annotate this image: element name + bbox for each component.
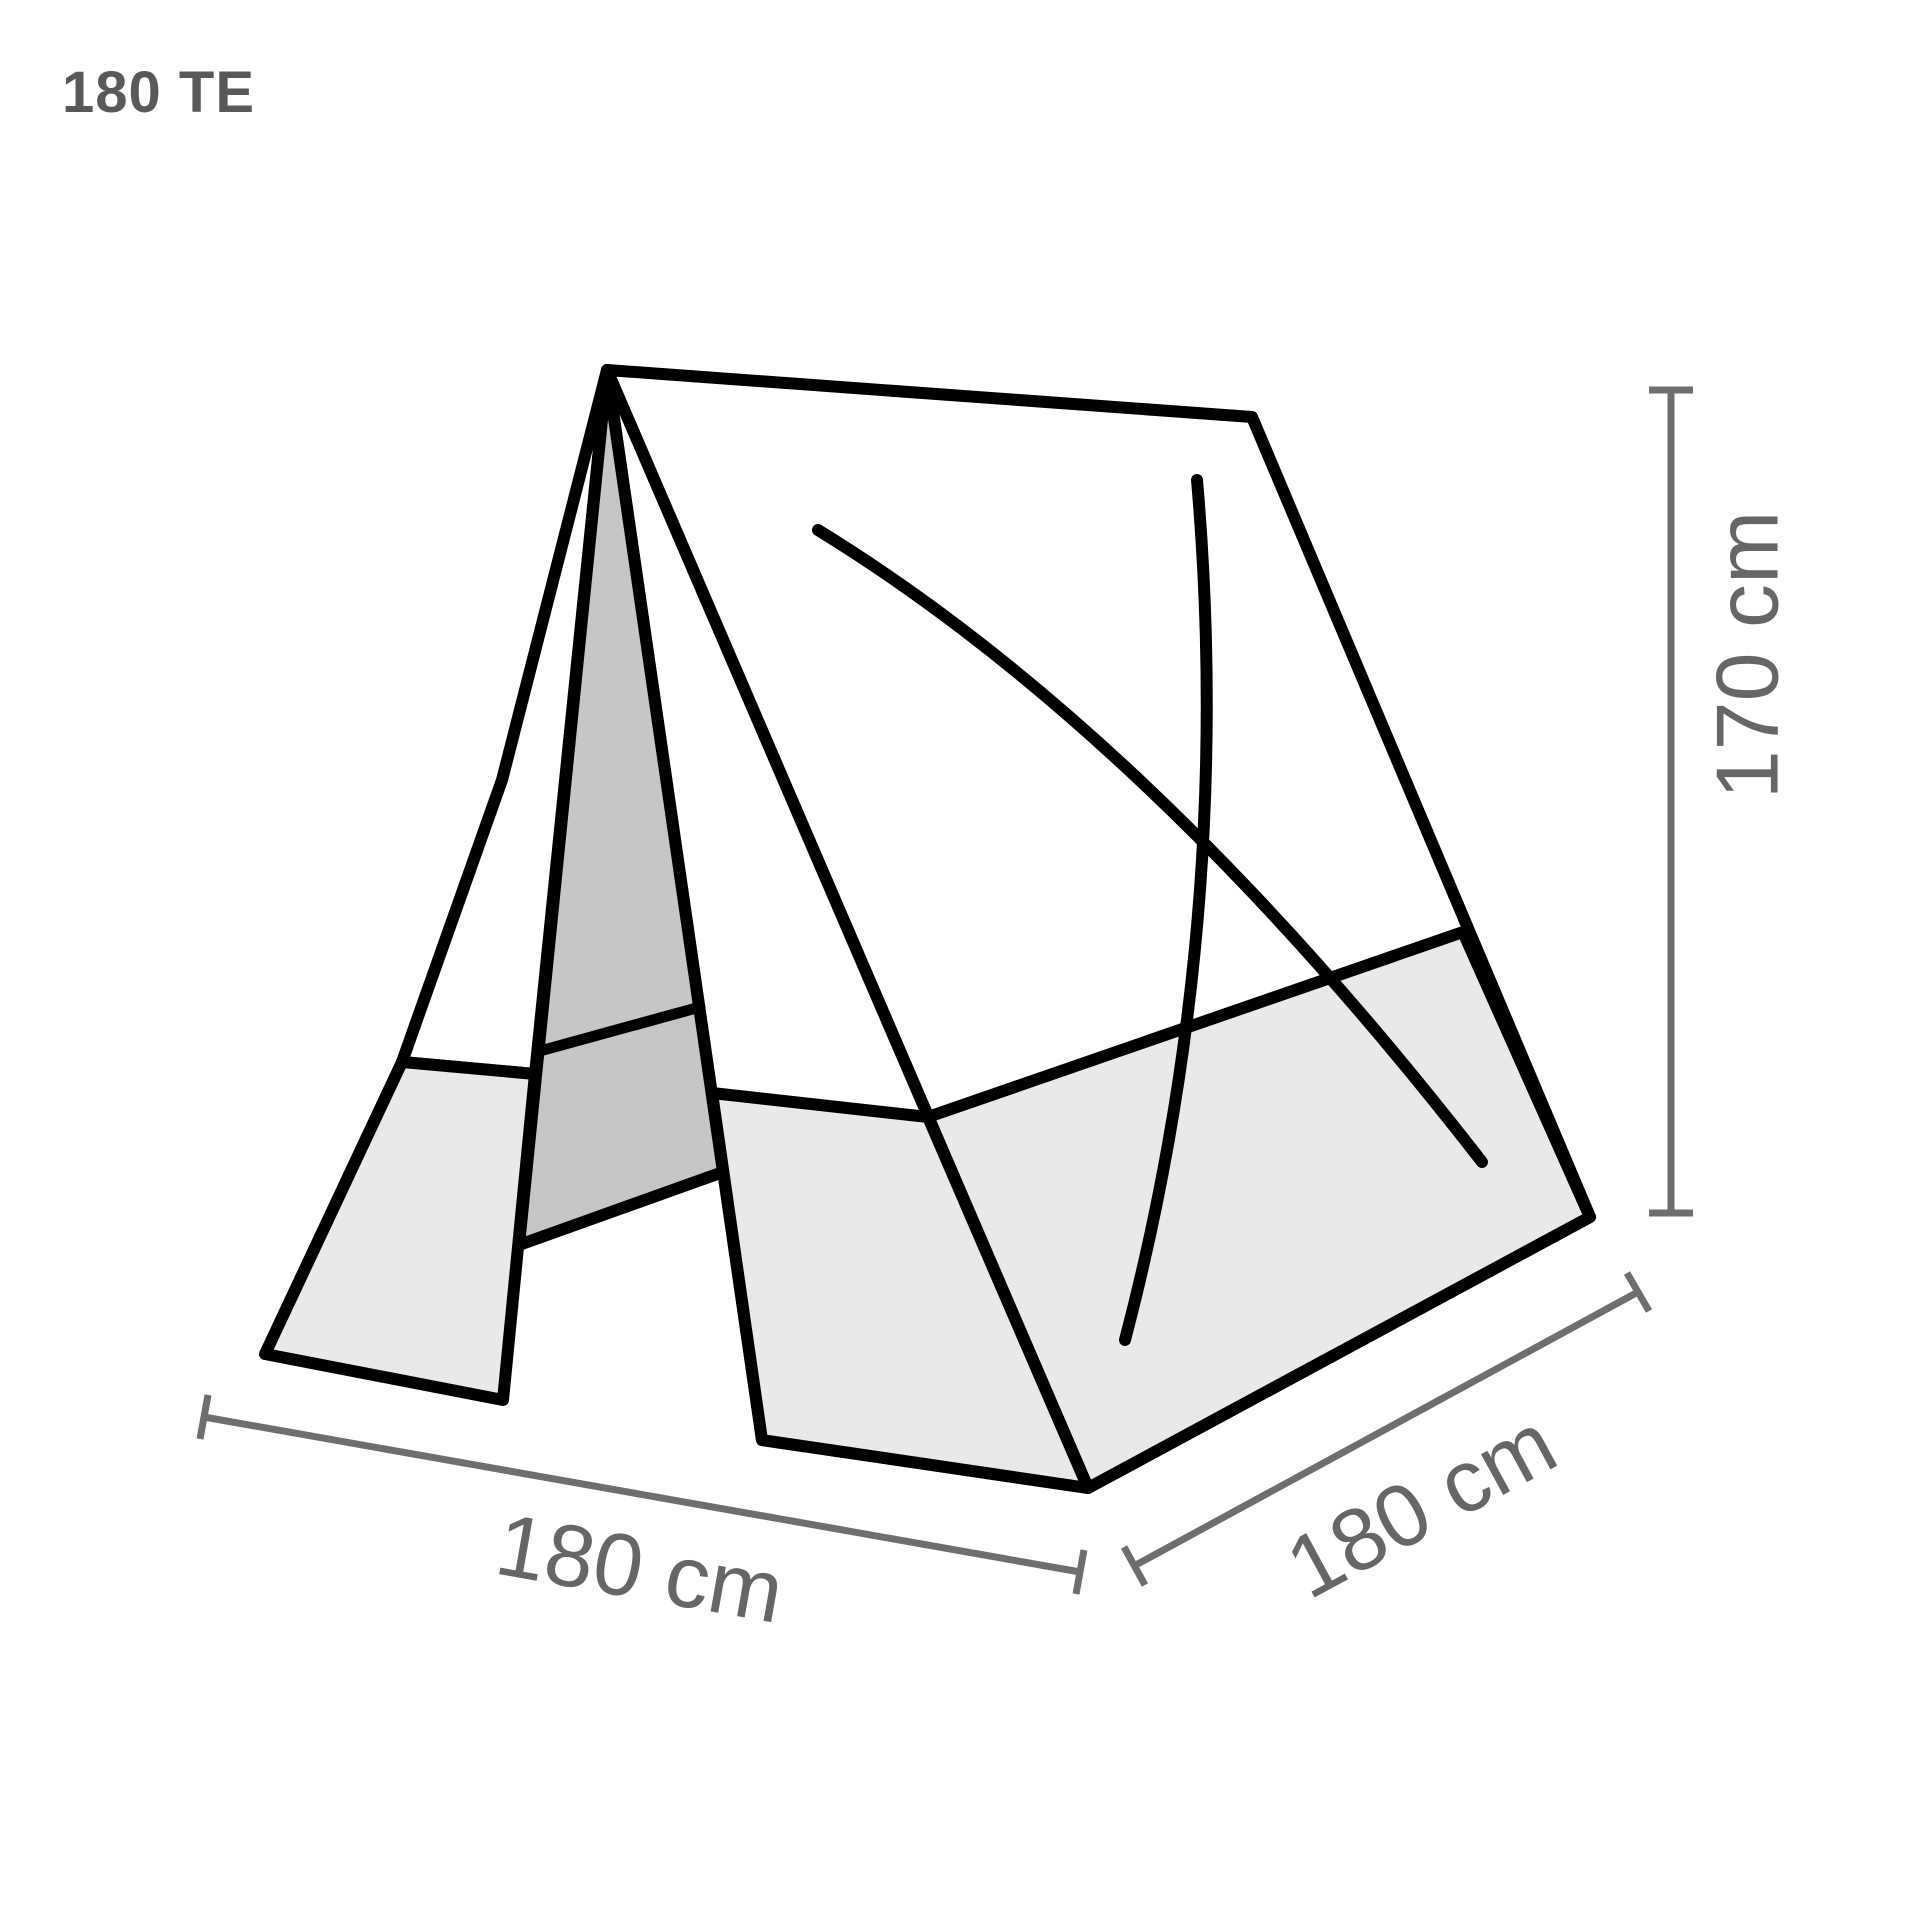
- depth-dimension-label: 180 cm: [1271, 1393, 1572, 1618]
- height-dimension-label: 170 cm: [1698, 511, 1797, 800]
- tent-dimension-diagram: 180 TE: [0, 0, 1920, 1920]
- tent-diagram-canvas: 180 TE: [0, 0, 1920, 1920]
- height-dimension-line: [1649, 390, 1693, 1213]
- tent-left-skirt-panel: [265, 1062, 535, 1400]
- product-title: 180 TE: [62, 60, 255, 125]
